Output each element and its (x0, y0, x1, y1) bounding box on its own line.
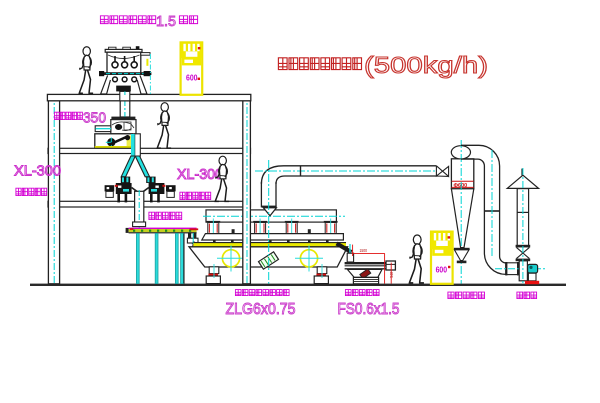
svg-text:1500: 1500 (360, 248, 368, 253)
svg-text:(500kg/h): (500kg/h) (364, 52, 488, 78)
svg-text:1.5: 1.5 (156, 13, 176, 30)
svg-text:Φ600: Φ600 (454, 183, 468, 189)
svg-text:XL-300: XL-300 (177, 167, 223, 183)
svg-text:600: 600 (186, 73, 198, 83)
svg-text:350: 350 (83, 110, 106, 127)
svg-text:ZLG6x0.75: ZLG6x0.75 (226, 301, 296, 318)
svg-text:600: 600 (436, 265, 448, 275)
svg-text:XL-300: XL-300 (14, 164, 61, 180)
svg-text:FS0.6x1.5: FS0.6x1.5 (338, 301, 400, 318)
svg-text:540: 540 (389, 271, 394, 278)
